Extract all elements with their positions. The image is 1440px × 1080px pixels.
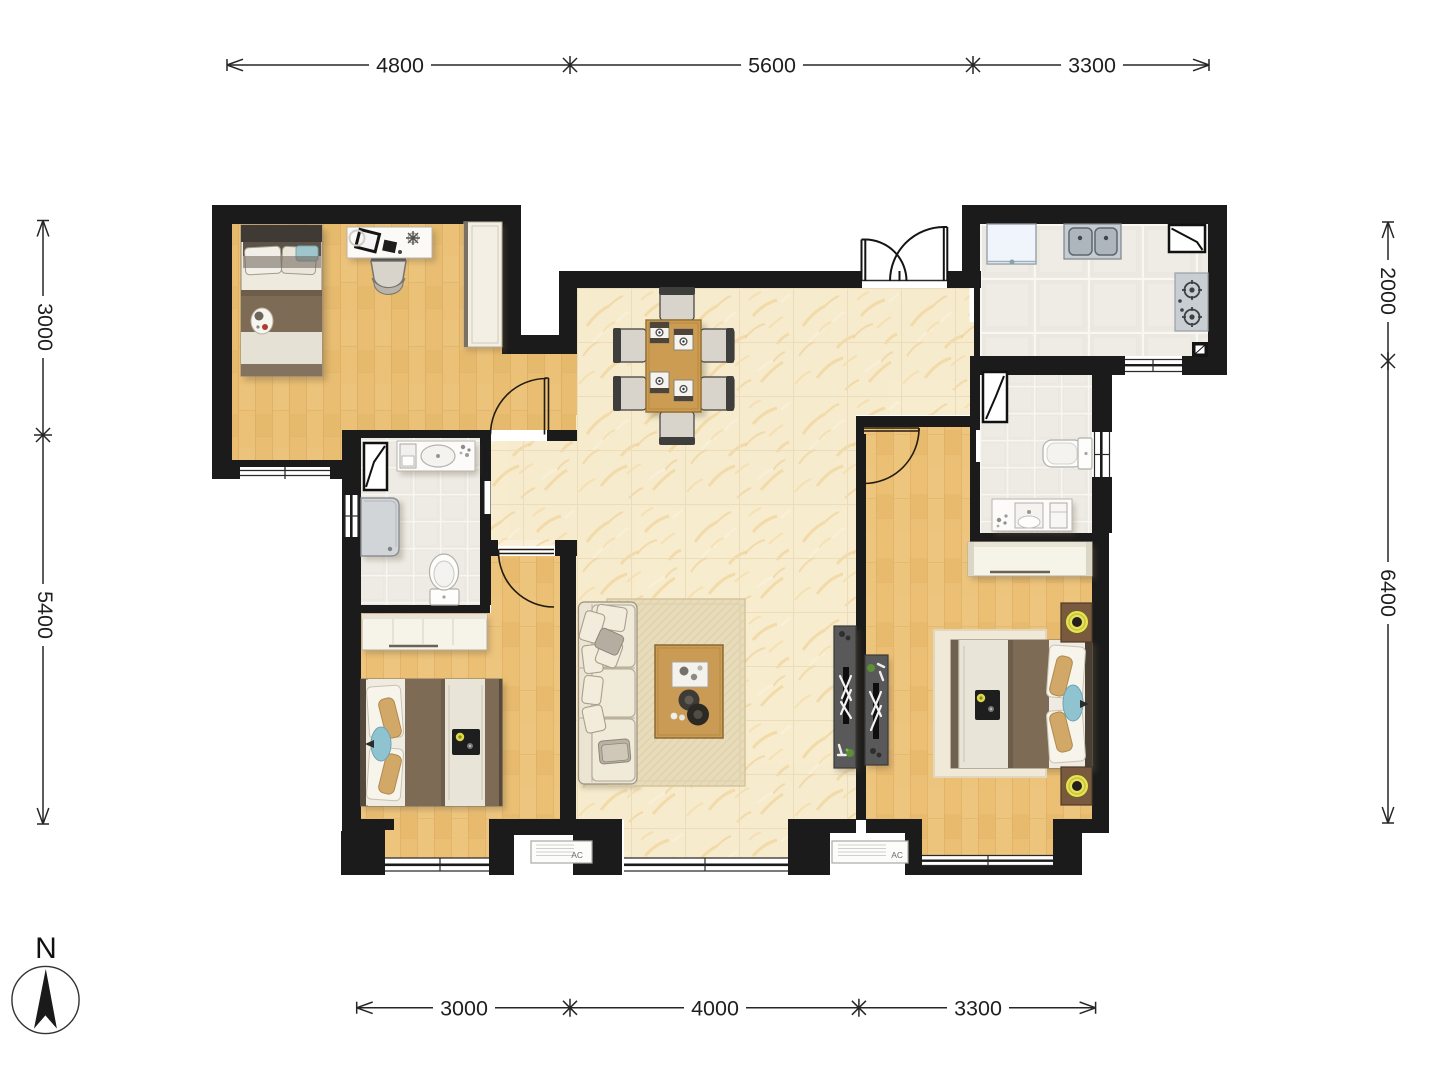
svg-text:4000: 4000 — [691, 997, 739, 1021]
svg-text:4800: 4800 — [376, 54, 424, 78]
svg-text:3300: 3300 — [954, 997, 1002, 1021]
svg-text:2000: 2000 — [1376, 267, 1400, 315]
svg-text:3300: 3300 — [1068, 54, 1116, 78]
svg-text:5600: 5600 — [748, 54, 796, 78]
svg-text:5400: 5400 — [33, 591, 57, 639]
svg-text:6400: 6400 — [1376, 569, 1400, 617]
svg-text:3000: 3000 — [33, 303, 57, 351]
svg-text:3000: 3000 — [440, 997, 488, 1021]
svg-text:AC: AC — [571, 850, 583, 860]
svg-text:N: N — [35, 932, 57, 965]
svg-text:AC: AC — [891, 850, 903, 860]
